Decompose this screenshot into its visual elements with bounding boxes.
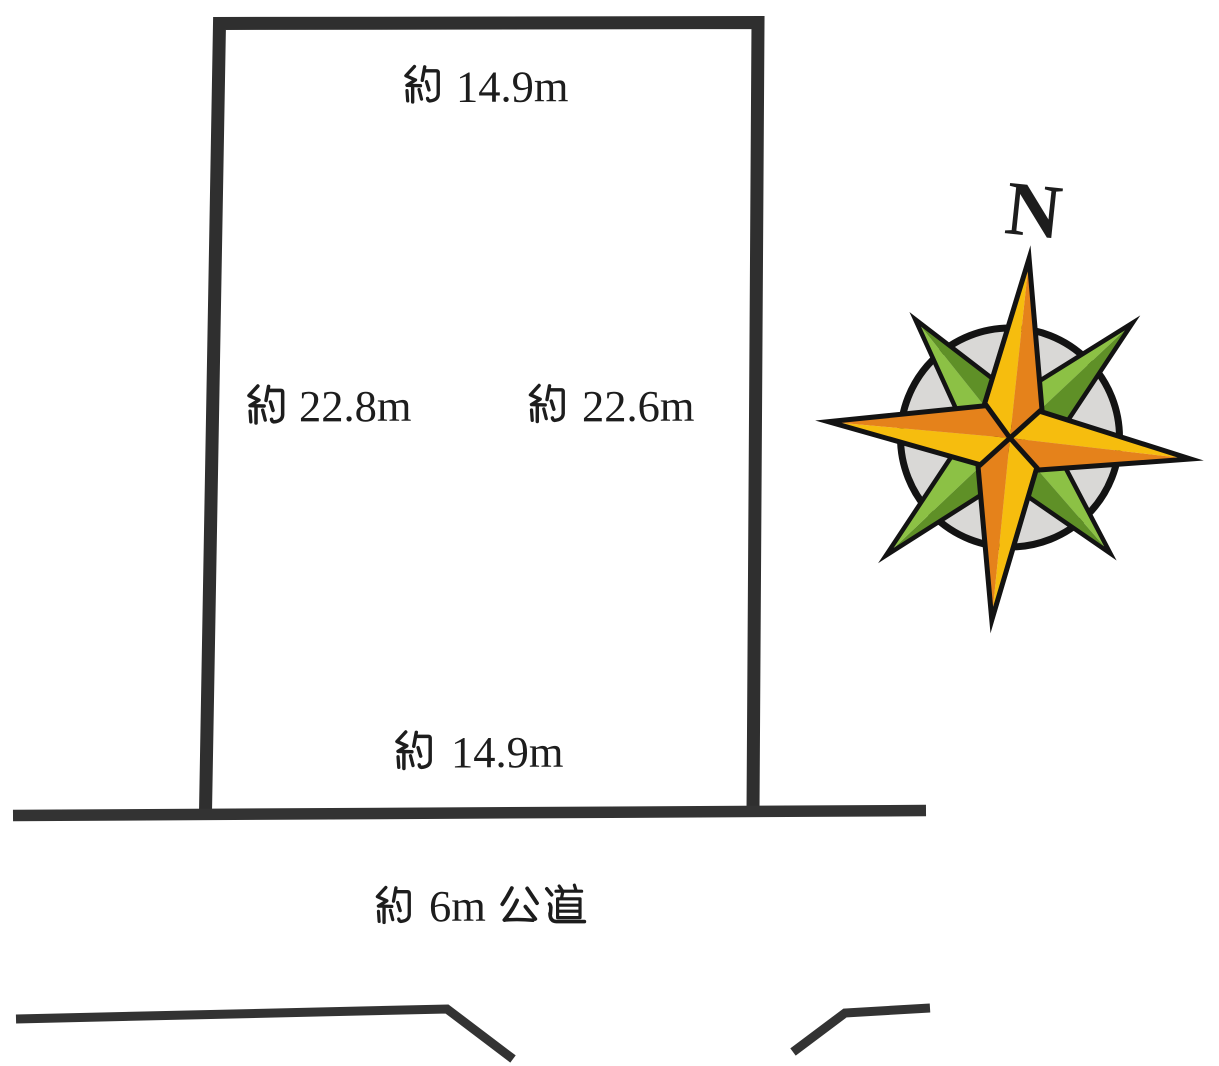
svg-text:14.9m: 14.9m bbox=[456, 62, 569, 112]
svg-text:14.9m: 14.9m bbox=[451, 727, 564, 777]
svg-text:22.6m: 22.6m bbox=[582, 381, 695, 431]
svg-text:N: N bbox=[1002, 164, 1066, 255]
svg-text:22.8m: 22.8m bbox=[299, 381, 412, 431]
svg-text:6m: 6m bbox=[429, 881, 486, 931]
